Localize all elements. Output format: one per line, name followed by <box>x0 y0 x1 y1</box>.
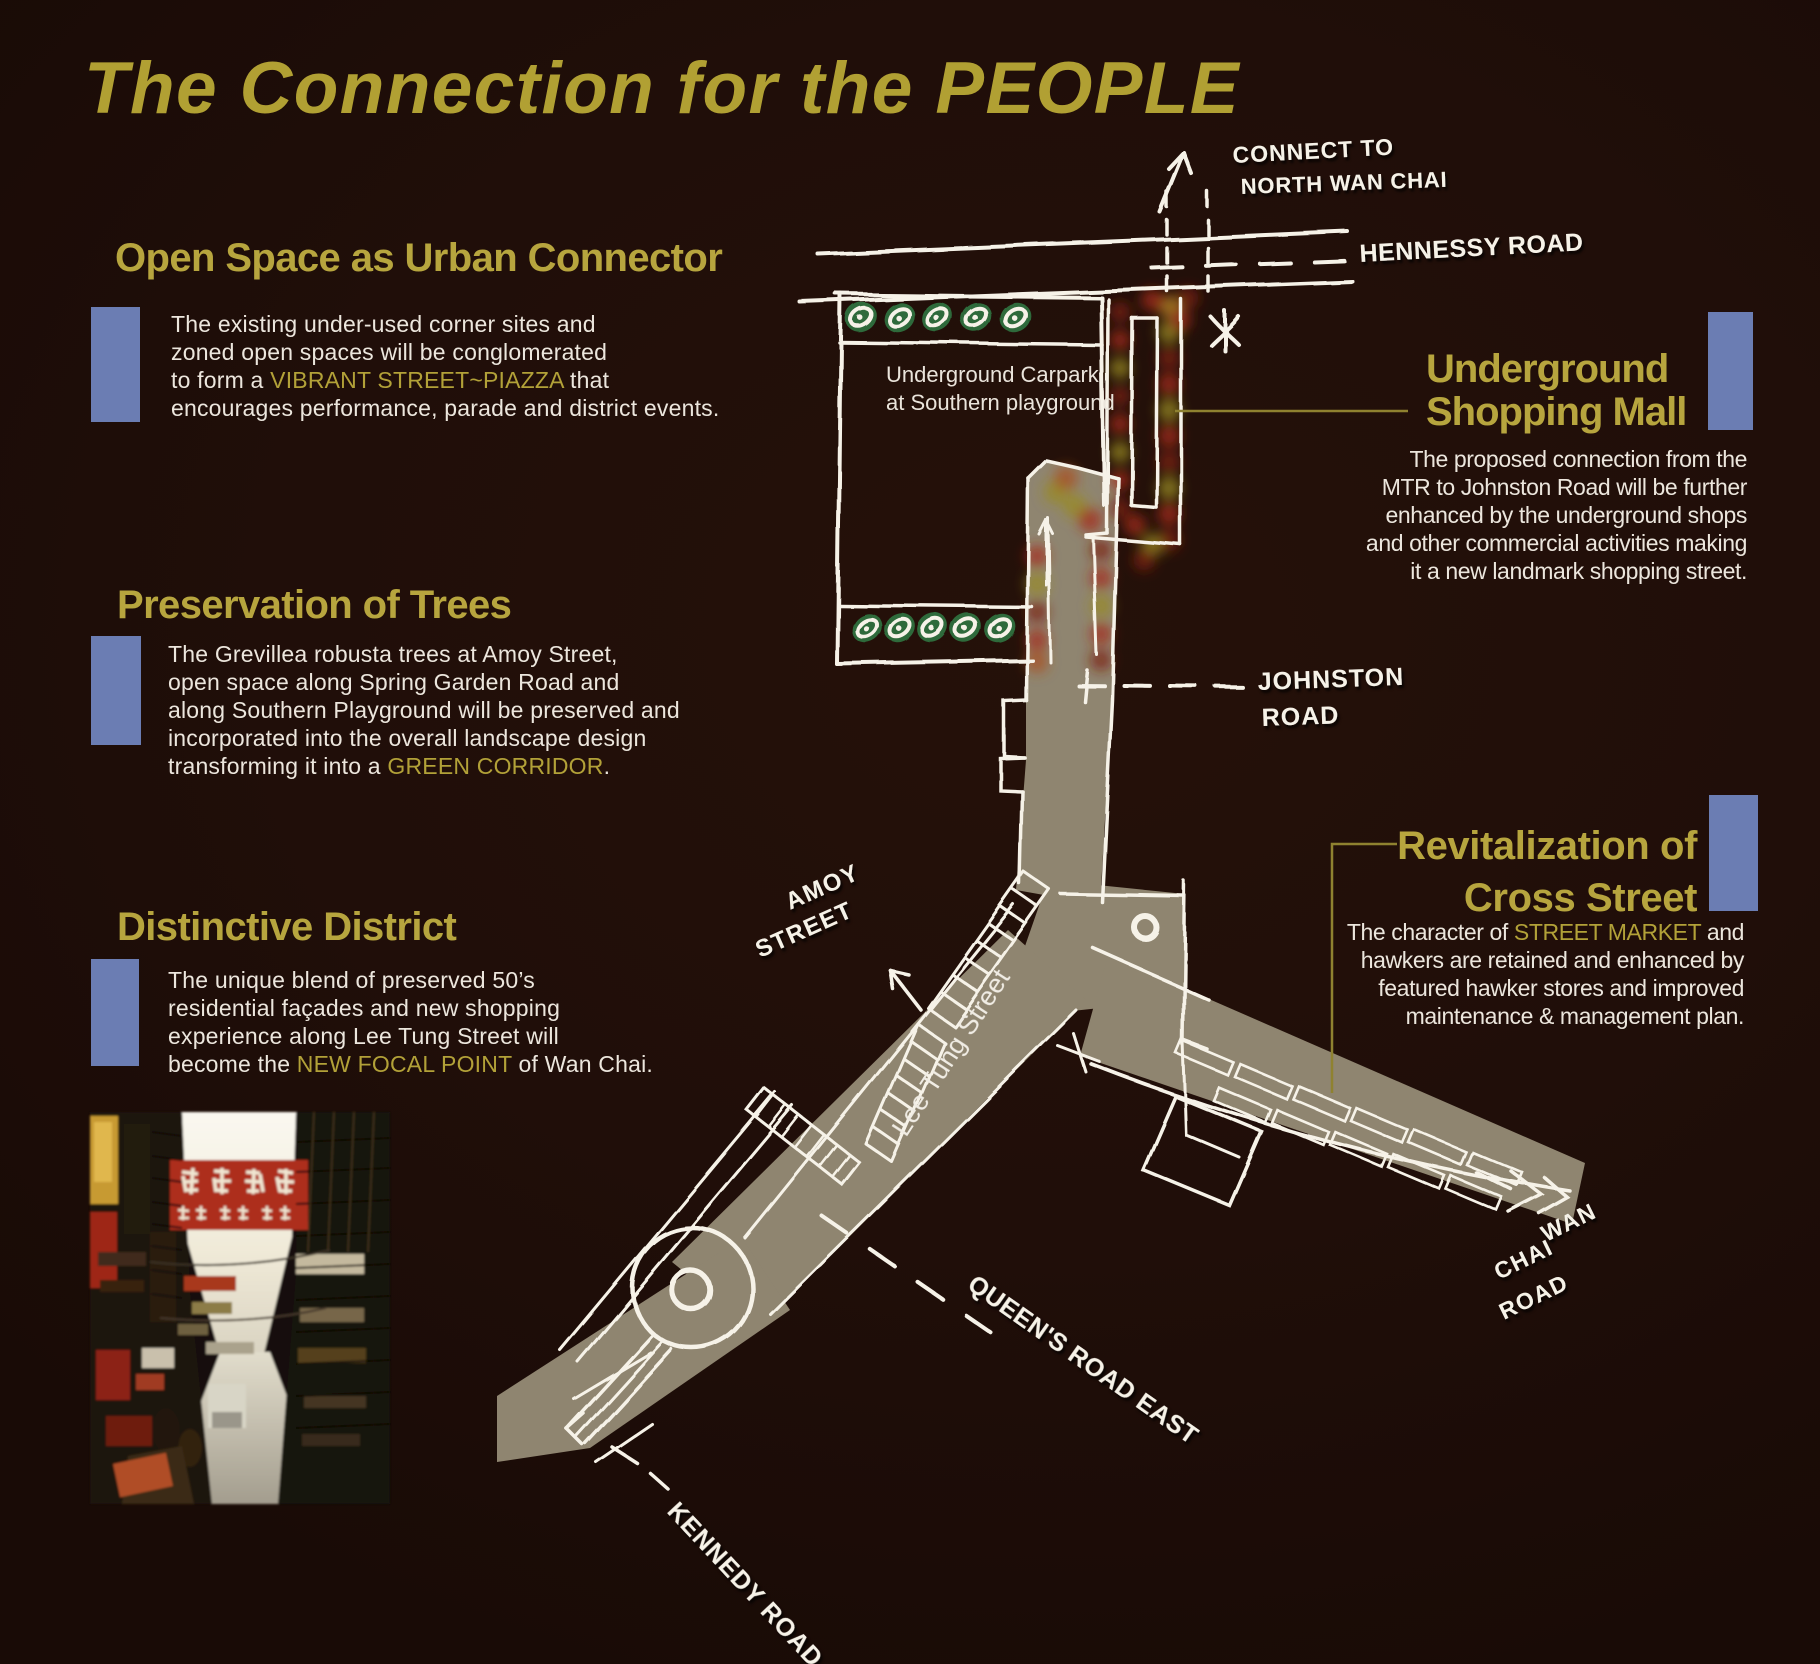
svg-text:CONNECT TO: CONNECT TO <box>1232 134 1395 168</box>
svg-text:ROAD: ROAD <box>1261 701 1340 732</box>
svg-text:QUEEN'S ROAD EAST: QUEEN'S ROAD EAST <box>963 1270 1204 1450</box>
svg-text:Underground Carpark: Underground Carpark <box>886 362 1100 387</box>
svg-text:KENNEDY ROAD: KENNEDY ROAD <box>662 1497 829 1664</box>
svg-text:HENNESSY ROAD: HENNESSY ROAD <box>1359 228 1584 268</box>
svg-text:JOHNSTON: JOHNSTON <box>1257 663 1404 696</box>
svg-text:NORTH WAN CHAI: NORTH WAN CHAI <box>1240 167 1447 199</box>
svg-text:at Southern playground: at Southern playground <box>886 390 1115 415</box>
